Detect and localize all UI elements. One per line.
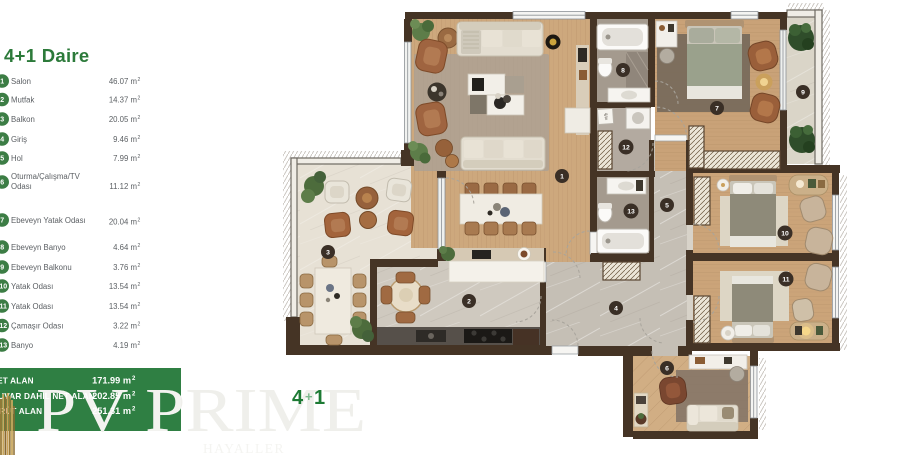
svg-text:9.46 m: 9.46 m [113, 135, 137, 144]
svg-text:2: 2 [138, 135, 141, 141]
svg-text:2: 2 [138, 243, 141, 249]
svg-text:Salon: Salon [11, 77, 31, 86]
svg-text:Yatak Odası: Yatak Odası [11, 282, 53, 291]
svg-text:13.54 m: 13.54 m [109, 282, 137, 291]
svg-text:3: 3 [0, 116, 4, 123]
svg-text:5: 5 [0, 155, 4, 162]
svg-text:10: 10 [0, 283, 7, 290]
svg-text:BRÜT ALAN: BRÜT ALAN [0, 406, 42, 416]
svg-text:4: 4 [292, 387, 304, 409]
svg-text:13: 13 [0, 342, 7, 349]
svg-text:5: 5 [665, 203, 669, 210]
svg-text:Ebeveyn Balkonu: Ebeveyn Balkonu [11, 263, 72, 272]
svg-text:4: 4 [614, 306, 618, 313]
svg-text:1: 1 [560, 174, 564, 181]
svg-text:9: 9 [801, 90, 805, 97]
svg-text:Ebeveyn Banyo: Ebeveyn Banyo [11, 243, 66, 252]
svg-text:13.54 m: 13.54 m [109, 302, 137, 311]
svg-text:7: 7 [0, 217, 4, 224]
svg-text:7.99 m: 7.99 m [113, 154, 137, 163]
svg-text:2: 2 [138, 182, 141, 188]
svg-text:8: 8 [621, 68, 625, 75]
svg-text:11.12 m: 11.12 m [109, 182, 137, 191]
svg-text:9: 9 [0, 264, 4, 271]
svg-text:3: 3 [326, 250, 330, 257]
svg-text:NET ALAN: NET ALAN [0, 377, 34, 386]
svg-text:14.37 m: 14.37 m [109, 95, 137, 104]
svg-text:Giriş: Giriş [11, 135, 27, 144]
svg-text:2: 2 [138, 282, 141, 288]
svg-text:2: 2 [138, 321, 141, 327]
svg-text:4.19 m: 4.19 m [113, 341, 137, 350]
svg-text:20.04 m: 20.04 m [109, 218, 137, 227]
svg-text:Balkon: Balkon [11, 115, 35, 124]
svg-text:12: 12 [622, 145, 630, 152]
svg-text:4.64 m: 4.64 m [113, 243, 137, 252]
svg-text:Oturma/Çalışma/TV: Oturma/Çalışma/TV [11, 172, 81, 181]
svg-text:11: 11 [0, 303, 7, 310]
svg-text:DUVAR DAHİL NET ALAN: DUVAR DAHİL NET ALAN [0, 391, 95, 401]
svg-text:6: 6 [0, 179, 4, 186]
svg-text:3.76 m: 3.76 m [113, 263, 137, 272]
svg-text:Yatak Odası: Yatak Odası [11, 302, 53, 311]
svg-text:251.31 m: 251.31 m [92, 406, 131, 416]
svg-text:vt/b: vt/b [604, 112, 609, 120]
svg-text:4: 4 [0, 136, 4, 143]
svg-text:1: 1 [0, 78, 4, 85]
svg-text:2: 2 [0, 97, 4, 104]
svg-text:6: 6 [665, 366, 669, 373]
svg-text:202.85 m: 202.85 m [92, 391, 131, 401]
svg-text:2: 2 [138, 218, 141, 224]
svg-text:Hol: Hol [11, 154, 23, 163]
svg-text:1: 1 [314, 387, 325, 409]
svg-text:2: 2 [138, 95, 141, 101]
svg-text:Mutfak: Mutfak [11, 95, 34, 104]
svg-text:2: 2 [138, 154, 141, 160]
svg-text:2: 2 [138, 263, 141, 269]
svg-text:Odası: Odası [11, 182, 32, 191]
svg-text:Ebeveyn Yatak Odası: Ebeveyn Yatak Odası [11, 216, 86, 225]
svg-text:2: 2 [138, 115, 141, 121]
svg-text:Çamaşır Odası: Çamaşır Odası [11, 321, 63, 330]
svg-text:46.07 m: 46.07 m [109, 77, 137, 86]
svg-text:12: 12 [0, 323, 7, 330]
svg-text:10: 10 [781, 231, 789, 238]
svg-text:2: 2 [138, 302, 141, 308]
svg-text:2: 2 [467, 299, 471, 306]
svg-text:HAYALLER: HAYALLER [203, 441, 285, 455]
svg-text:3.22 m: 3.22 m [113, 321, 137, 330]
svg-text:2: 2 [138, 341, 141, 347]
svg-text:171.99 m: 171.99 m [92, 376, 131, 386]
svg-text:7: 7 [715, 106, 719, 113]
svg-text:2: 2 [138, 77, 141, 83]
svg-text:13: 13 [627, 209, 635, 216]
svg-text:Banyo: Banyo [11, 341, 34, 350]
svg-text:+: + [305, 389, 313, 404]
svg-text:11: 11 [782, 277, 789, 284]
svg-text:20.05 m: 20.05 m [109, 115, 137, 124]
svg-text:4+1 Daire: 4+1 Daire [4, 45, 90, 66]
svg-text:8: 8 [0, 244, 4, 251]
